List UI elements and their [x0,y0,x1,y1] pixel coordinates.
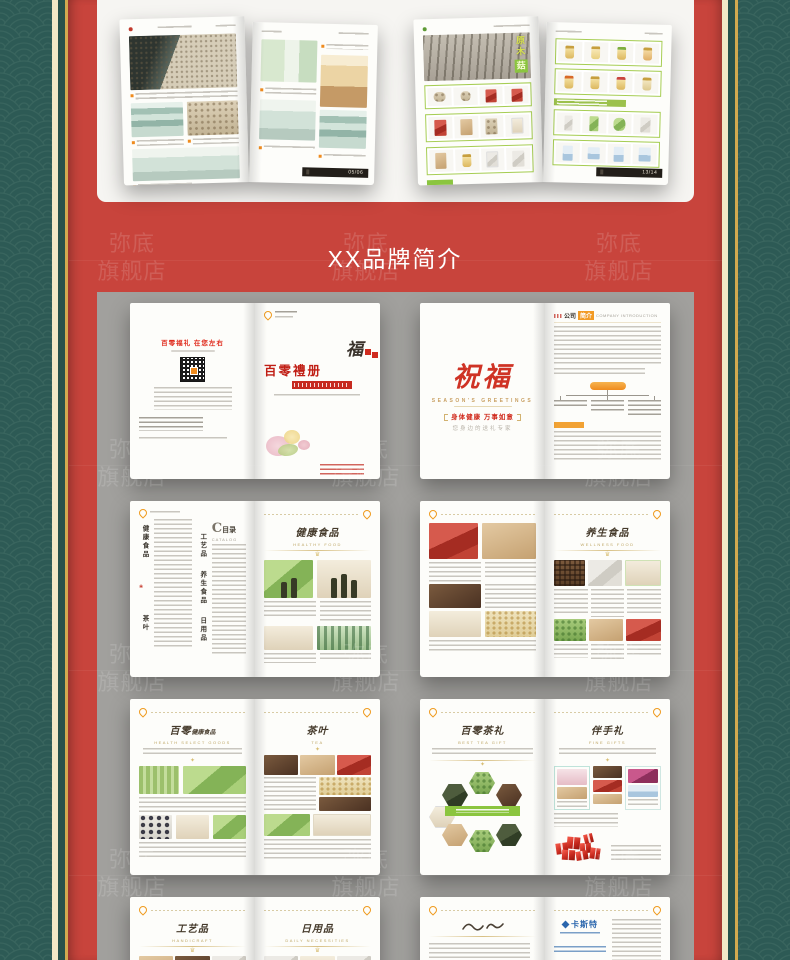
photo-black-mulberries [139,815,172,839]
frame-line-gold-right [735,0,738,960]
photo-tea-crate [313,814,371,836]
photo-nuts [485,611,537,637]
jar-row [554,38,662,67]
photo-daily-items-3 [337,956,371,960]
red-gift-boxes [554,831,606,861]
photo-gift-room [264,626,313,650]
photo-corridor [320,55,368,108]
photo-tea-dark [264,755,298,775]
section-title: XX品牌简介 [0,240,790,274]
page-heading: 日用品 DAILY NECESSITIES [264,919,371,943]
daily-goods-page: 日用品 DAILY NECESSITIES ♛ [255,897,380,960]
fu-calligraphy: 福 [346,340,363,360]
hex-leaves-bottom [469,830,495,852]
greeting-english: SEASON'S GREETINGS [429,398,536,404]
photo-ginseng [589,619,624,641]
hexagon-cluster [429,772,536,852]
vertical-label-block: 菇 [514,59,527,72]
photo-lattice [554,560,585,586]
crafts-page: 工艺品 HANDICRAFT ♛ [130,897,255,960]
crown-ornament: ♛ [264,553,371,558]
products-right-page: 13/14 [543,22,672,185]
red-seal [365,349,371,355]
greeting-subtitle: 您身边的送礼专家 [429,424,536,432]
brand-logo-icon [651,706,662,717]
brand-logo-icon [137,507,148,518]
brand-logo-icon [137,706,148,717]
section-chip [554,422,584,428]
spread-product-pages: 原木 菇 [418,16,668,182]
page-heading: 百零健康食品 HEALTH SELECT GOODS [139,721,246,745]
souvenir-page: 伴手礼 FINE GIFTS ✦ [545,699,670,875]
photo-tea-tan [300,755,334,775]
category-label: 工艺品 [197,533,207,559]
intro-title-en: COMPANY INTRODUCTION [596,313,658,318]
brand-logo-icon [651,904,662,915]
photo-green-boxes [183,766,246,794]
spread-teagift-souvenir: 百零茶礼 BEST TEA GIFT ✦ [420,699,670,875]
org-chart [554,382,661,416]
catalog-title: C目录 CATALOG [212,519,246,542]
photo-green-tea [554,619,586,641]
photo-machine [130,102,182,137]
spread-catalog-health: 健康食品 ❀ 茶叶 工艺品 养生食品 日用品 C目录 [130,501,380,677]
intro-header: 公司 简介 COMPANY INTRODUCTION [554,311,661,323]
brand-logo-icon [651,508,662,519]
spread-cover-back-front: 百零福礼 在您左右 福 百零禮册 [130,303,380,479]
frame-gap-right [728,0,735,960]
photo-tea-red [337,755,371,775]
zhufu-calligraphy: 祝福 [429,355,536,394]
photo-figure [588,560,622,586]
page-heading: 养生食品 WELLNESS FOOD [554,523,661,547]
intro-title-cn: 公司 [564,311,576,320]
wellness-food-page: 养生食品 WELLNESS FOOD ♛ [545,501,670,677]
pack-row-blue [552,139,660,168]
photo-lab-room [319,110,367,149]
hex-center-bar [445,806,520,816]
vertical-label-text: 原木 [513,35,527,57]
gallery-panel: 05/06 原木 菇 [97,0,694,202]
page-heading: 工艺品 HANDICRAFT [139,919,246,943]
script-heading-decoration [460,919,506,933]
gift-card [593,766,623,810]
photo-craft-items [212,956,246,960]
intro-title-highlight: 简介 [578,311,594,320]
spread-wellness: 养生食品 WELLNESS FOOD ♛ [420,501,670,677]
photo-red-gift-boxes [429,523,478,559]
page-heading: 茶叶 TEA [264,721,371,745]
crown-ornament: ♛ [139,949,246,954]
page-heading: 伴手礼 FINE GIFTS [554,721,661,745]
page-number-bar: 05/06 [302,167,368,178]
photo-oil-bottles [317,560,371,598]
plum-accent: ❀ [139,585,149,589]
spread-crafts-daily: 工艺品 HANDICRAFT ♛ 日用品 DAILY NECESSITIES [130,897,380,960]
diamond-icon [562,921,570,929]
company-intro-page: 公司 简介 COMPANY INTRODUCTION [545,303,670,479]
photo-paper-bags [482,523,536,559]
photo-gold-tin [319,777,371,795]
brand-logo-icon [137,904,148,915]
category-label: 日用品 [197,617,207,643]
tea-page: 茶叶 TEA ✦ [255,699,380,875]
photo-mushrooms [186,100,238,135]
factory-right-page: 05/06 [249,22,378,185]
photo-daily-items-2 [300,956,334,960]
hex-dark-leaves [496,824,522,846]
spread-brand-page: 卡斯特 [420,897,670,960]
photo-tea-cake [319,797,371,811]
crown-ornament: ♛ [264,949,371,954]
hex-dark-tea [442,784,468,806]
page-number: 05/06 [348,169,363,175]
photo-workshop [132,146,240,181]
photo-cocoa-pods [429,584,481,608]
star-ornament: ✦ [264,748,371,753]
category-label: 茶叶 [139,615,149,632]
product-row [425,111,533,142]
brand-logo-icon [361,508,372,519]
greeting-page: 祝福 SEASON'S GREETINGS 身体健康 万事如意 您身边的送礼专家 [420,303,545,479]
page-heading: 健康食品 HEALTHY FOOD [264,523,371,547]
category-label: 健康食品 [139,525,149,559]
photo-box-greenlogo [625,560,661,586]
tea-gift-page: 百零茶礼 BEST TEA GIFT ✦ [420,699,545,875]
products-left-page: 原木 菇 [413,16,543,185]
photo-room-curtain [260,39,317,82]
wellness-collage-page [420,501,545,677]
page-number: 13/14 [642,169,657,175]
pack-row [553,109,661,138]
brand-logo-icon [427,904,438,915]
photo-green-packs [264,560,313,598]
photo-daily-items [264,956,298,960]
listing-detail-image: 05/06 原木 菇 [0,0,790,960]
photo-bowl [176,815,209,839]
category-label: 养生食品 [197,571,207,605]
green-section-bar [553,98,625,107]
lotus-illustration [264,428,371,462]
health-products-page: 百零健康食品 HEALTH SELECT GOODS ✦ [130,699,255,875]
photo-packing-room [259,99,316,140]
green-footer-tag [426,180,452,186]
jar-row [554,68,662,97]
frame-gap-left [58,0,65,960]
brand-logo-icon [427,508,438,519]
crown-ornament: ♛ [554,553,661,558]
gift-card [625,766,661,810]
photo-log-mushrooms: 原木 菇 [422,32,530,81]
hex-brown-box [496,784,522,806]
star-ornament: ✦ [139,759,246,764]
photo-conveyor [128,33,236,90]
hex-green-leaves [469,772,495,794]
brand-logo-icon [262,309,273,320]
brand-logo-icon [361,706,372,717]
star-ornament: ✦ [554,759,661,764]
spread-health-tea: 百零健康食品 HEALTH SELECT GOODS ✦ [130,699,380,875]
page-heading: 百零茶礼 BEST TEA GIFT [429,721,536,745]
photo-green-pack [213,815,246,839]
star-ornament: ✦ [429,763,536,768]
brand-logo-page: 卡斯特 [545,897,670,960]
brand-logo-icon [427,706,438,717]
vertical-label: 原木 菇 [513,35,527,72]
product-row [425,144,533,175]
photo-pottery [175,956,209,960]
health-food-page: 健康食品 HEALTHY FOOD ♛ [255,501,380,677]
photo-cream-boxes [429,611,481,637]
catalog-toc-page: 健康食品 ❀ 茶叶 工艺品 养生食品 日用品 C目录 [130,501,255,677]
greeting-slogan: 身体健康 万事如意 [429,411,536,421]
photo-forest [317,626,371,650]
red-ribbon [292,381,352,389]
brand-intro-panel: 百零福礼 在您左右 福 百零禮册 [97,292,694,960]
front-cover-page: 福 百零禮册 [255,303,380,479]
brand-logo-icon [361,904,372,915]
blue-brand-logo: 卡斯特 [562,919,598,930]
photo-green-tea-box [264,814,310,836]
photo-red-stack [626,619,661,641]
product-row [424,82,532,109]
spread-greeting-intro: 祝福 SEASON'S GREETINGS 身体健康 万事如意 您身边的送礼专家… [420,303,670,479]
back-cover-headline: 百零福礼 在您左右 [139,337,246,347]
note-page [420,897,545,960]
factory-left-page [119,16,249,185]
qr-code [180,357,205,382]
photo-vases [139,956,173,960]
page-number-bar: 13/14 [596,167,662,178]
gift-card [554,766,590,810]
front-cover-title: 百零禮册 [264,360,371,379]
back-cover-page: 百零福礼 在您左右 [130,303,255,479]
photo-bamboo [139,766,179,794]
spread-factory-pages: 05/06 [124,16,374,182]
